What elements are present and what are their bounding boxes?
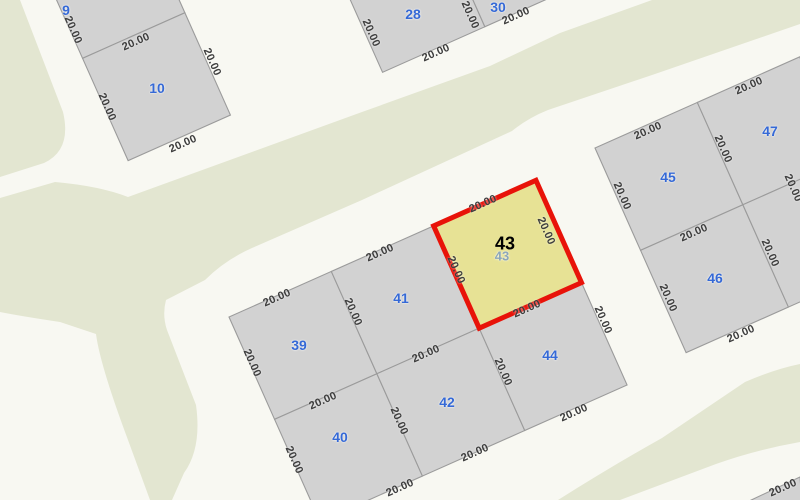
parcel-block-east [595, 57, 800, 353]
parcel-block-northwest [37, 0, 230, 161]
green-area-topleft [0, 0, 65, 177]
parcel-corner-fragment[interactable] [747, 477, 800, 500]
map-canvas[interactable]: 91028303940414244454647434320.0020.0020.… [0, 0, 800, 500]
map-svg[interactable] [0, 0, 800, 500]
parcel-28[interactable] [337, 0, 485, 72]
